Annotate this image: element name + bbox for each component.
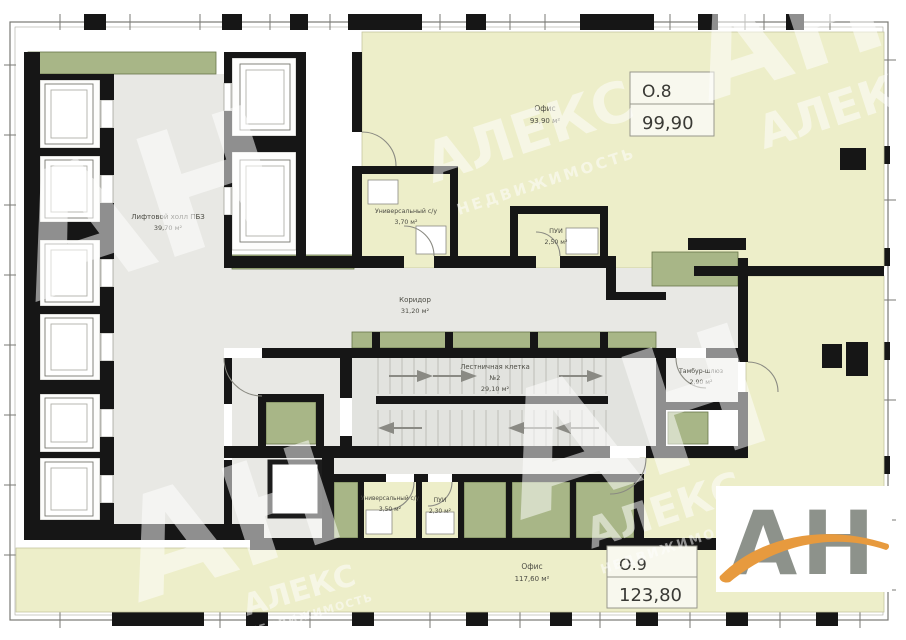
wc-bottom-area-label: 3,50 м² [379, 506, 402, 513]
corridor-area-label: 31,20 м² [401, 307, 430, 315]
floor-plan-image: Лифтовой холл ПБЗ 39,70 м² Офис 93,90 м²… [0, 0, 906, 640]
unit-number: О.8 [642, 82, 672, 102]
unit-total-area: 123,80 [619, 585, 682, 606]
elevator-door [101, 409, 113, 437]
cleaning-top-label: ПУИ [549, 227, 563, 235]
fixture [368, 180, 398, 204]
fixture [426, 512, 454, 534]
unit-total-area: 99,90 [642, 113, 694, 134]
office-bottom-area-label: 117,60 м² [515, 575, 550, 583]
elevator-door [101, 333, 113, 361]
cleaning-top-area-label: 2,50 м² [545, 239, 568, 246]
agency-logo: АН [716, 486, 892, 595]
elevator-car [45, 398, 93, 448]
elevator-car [45, 462, 93, 516]
wc-top-area-label: 3,70 м² [395, 219, 418, 226]
wc-bottom-label: Универсальный с/у [361, 495, 420, 502]
cleaning-bottom-area-label: 2,30 м² [429, 508, 452, 515]
fixture [566, 228, 598, 254]
fixture [416, 226, 446, 254]
wc-top-label: Универсальный с/у [375, 207, 437, 215]
floor-plan-svg: Лифтовой холл ПБЗ 39,70 м² Офис 93,90 м²… [0, 0, 906, 640]
fixture [366, 510, 392, 534]
cleaning-bottom-label: ПУИ [433, 497, 446, 504]
office-bottom-label: Офис [521, 562, 542, 571]
green-shaft [464, 482, 506, 538]
corridor-label: Коридор [399, 296, 431, 304]
green-shaft [28, 52, 216, 74]
